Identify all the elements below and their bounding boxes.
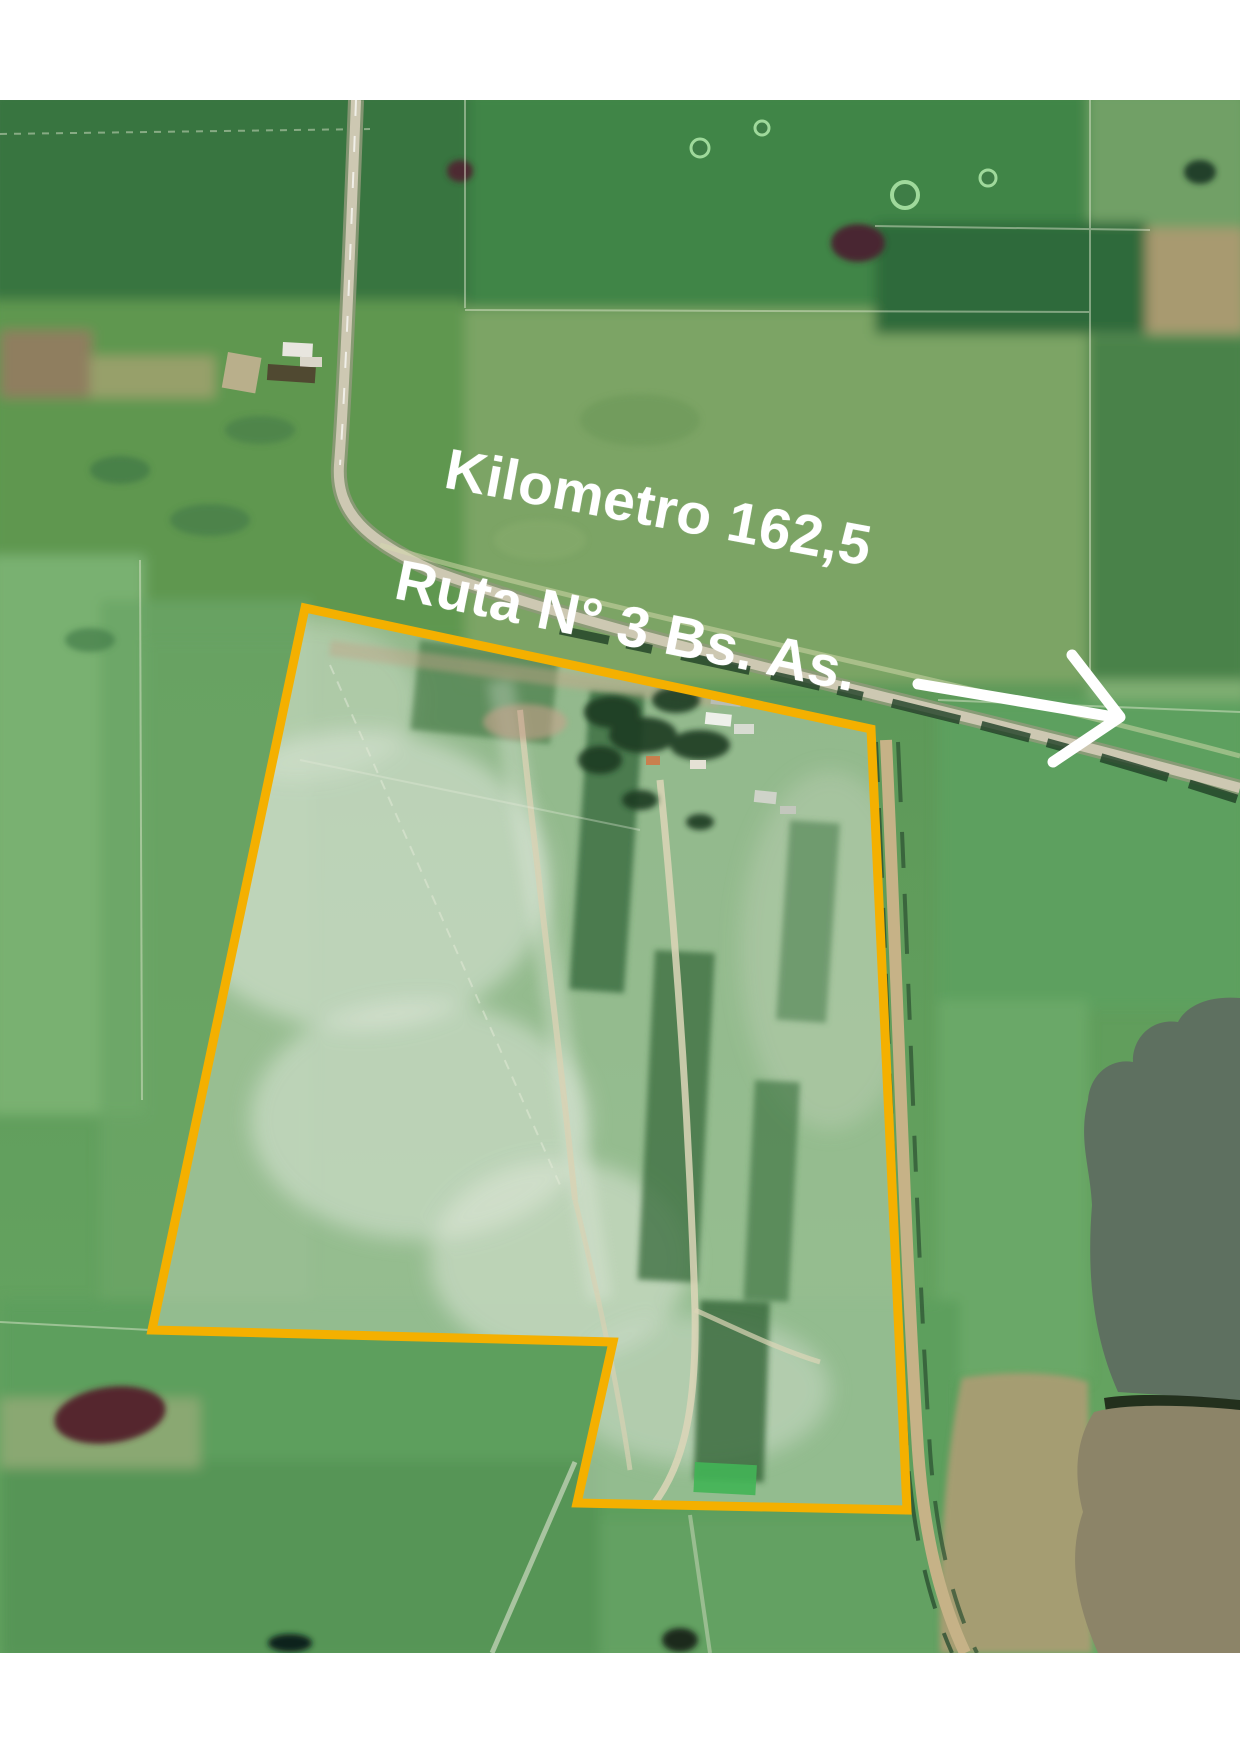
- satellite-map: [0, 0, 1240, 1755]
- bare-soil-patch: [483, 704, 567, 740]
- top-margin: [0, 0, 1240, 100]
- aerial-photo-canvas: Kilometro 162,5 Ruta N° 3 Bs. As.: [0, 0, 1240, 1755]
- bright-green-patch: [693, 1462, 756, 1495]
- bottom-margin: [0, 1653, 1240, 1755]
- tan-field: [940, 1373, 1092, 1653]
- masked-area-lower: [1075, 1406, 1240, 1653]
